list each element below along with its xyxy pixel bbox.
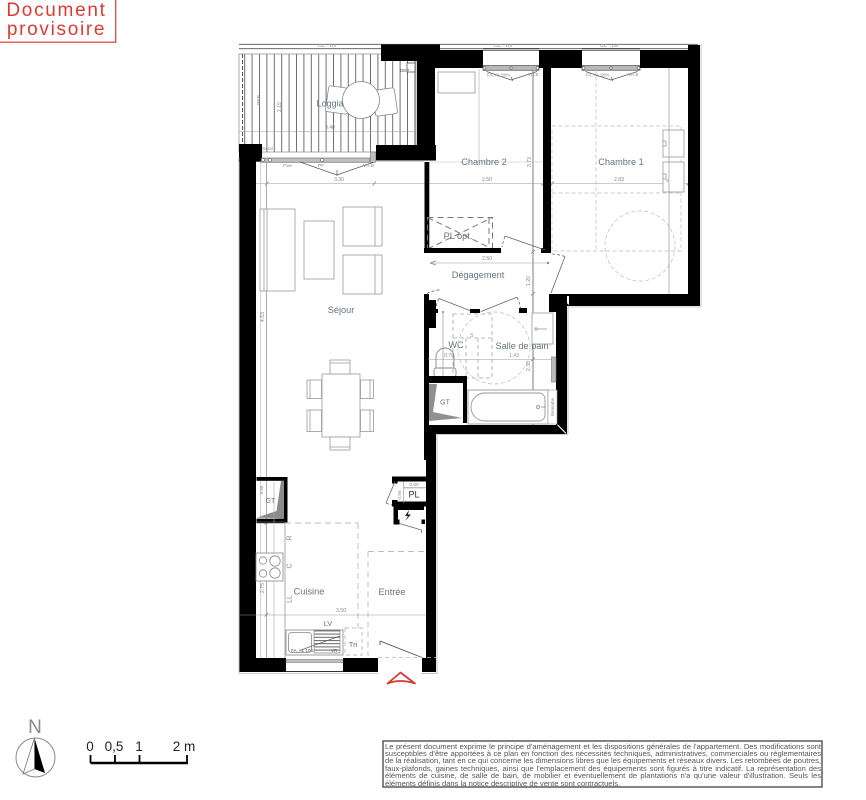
svg-text:provisoire: provisoire (7, 19, 106, 40)
svg-text:FA. AL 100: FA. AL 100 (291, 648, 313, 653)
svg-text:GC : 1/8: GC : 1/8 (494, 43, 512, 49)
svg-text:GT: GT (266, 498, 276, 505)
svg-text:WC: WC (448, 340, 464, 350)
svg-text:Tri: Tri (349, 640, 358, 649)
svg-text:3.73: 3.73 (527, 157, 533, 167)
svg-text:1.43: 1.43 (509, 353, 519, 359)
svg-text:GC : 1/8: GC : 1/8 (600, 43, 618, 49)
svg-text:3.50: 3.50 (336, 608, 346, 614)
svg-text:Dégagement: Dégagement (452, 270, 505, 280)
svg-text:C: C (287, 563, 294, 568)
svg-text:0,5: 0,5 (105, 739, 124, 754)
svg-text:Seuil: Seuil (262, 146, 273, 152)
svg-text:Retombe: Retombe (550, 397, 555, 416)
svg-text:Séjour: Séjour (328, 305, 355, 315)
svg-text:Document: Document (6, 0, 106, 21)
svg-text:GT: GT (440, 400, 450, 407)
svg-text:1.20: 1.20 (526, 276, 532, 286)
svg-text:LL: LL (287, 595, 294, 603)
svg-text:3.30: 3.30 (334, 177, 344, 183)
svg-text:4.53: 4.53 (260, 312, 266, 322)
svg-text:VR.E: VR.E (363, 163, 374, 169)
svg-text:0.60: 0.60 (409, 482, 419, 488)
svg-text:2 m: 2 m (173, 739, 196, 754)
svg-text:0.85: 0.85 (259, 485, 264, 494)
svg-text:VR.E: VR.E (628, 72, 639, 77)
svg-text:PL: PL (408, 490, 419, 500)
svg-text:Chambre 2: Chambre 2 (461, 157, 506, 167)
svg-text:0.75: 0.75 (444, 353, 454, 359)
svg-text:FA. AL 50%: FA. AL 50% (586, 73, 609, 78)
svg-text:1: 1 (135, 739, 143, 754)
svg-text:PF: PF (318, 163, 324, 169)
svg-text:GC : 1/8: GC : 1/8 (318, 43, 336, 49)
svg-text:S: S (666, 178, 669, 183)
svg-text:R: R (287, 535, 294, 540)
svg-text:0: 0 (86, 739, 94, 754)
svg-text:FA. AL 50%: FA. AL 50% (487, 73, 510, 78)
svg-text:N: N (28, 717, 42, 738)
svg-text:2.50: 2.50 (482, 177, 492, 183)
svg-text:Fixe: Fixe (283, 163, 292, 169)
svg-text:0.55: 0.55 (397, 490, 403, 500)
svg-text:PL opt.: PL opt. (444, 231, 473, 241)
svg-text:Entrée: Entrée (378, 587, 405, 597)
svg-text:Chambre 1: Chambre 1 (598, 157, 643, 167)
svg-text:2.15: 2.15 (277, 102, 283, 112)
svg-text:LV: LV (324, 619, 333, 628)
svg-text:BEP: BEP (256, 95, 262, 105)
svg-text:Loggia: Loggia (316, 99, 343, 109)
svg-text:VR: VR (331, 648, 338, 653)
svg-text:DEP: DEP (400, 68, 409, 73)
svg-text:2.83: 2.83 (614, 177, 624, 183)
svg-text:Cuisine: Cuisine (294, 587, 325, 597)
svg-text:2.50: 2.50 (482, 256, 492, 262)
svg-text:3.40: 3.40 (325, 125, 335, 131)
svg-text:2.75: 2.75 (260, 583, 266, 593)
